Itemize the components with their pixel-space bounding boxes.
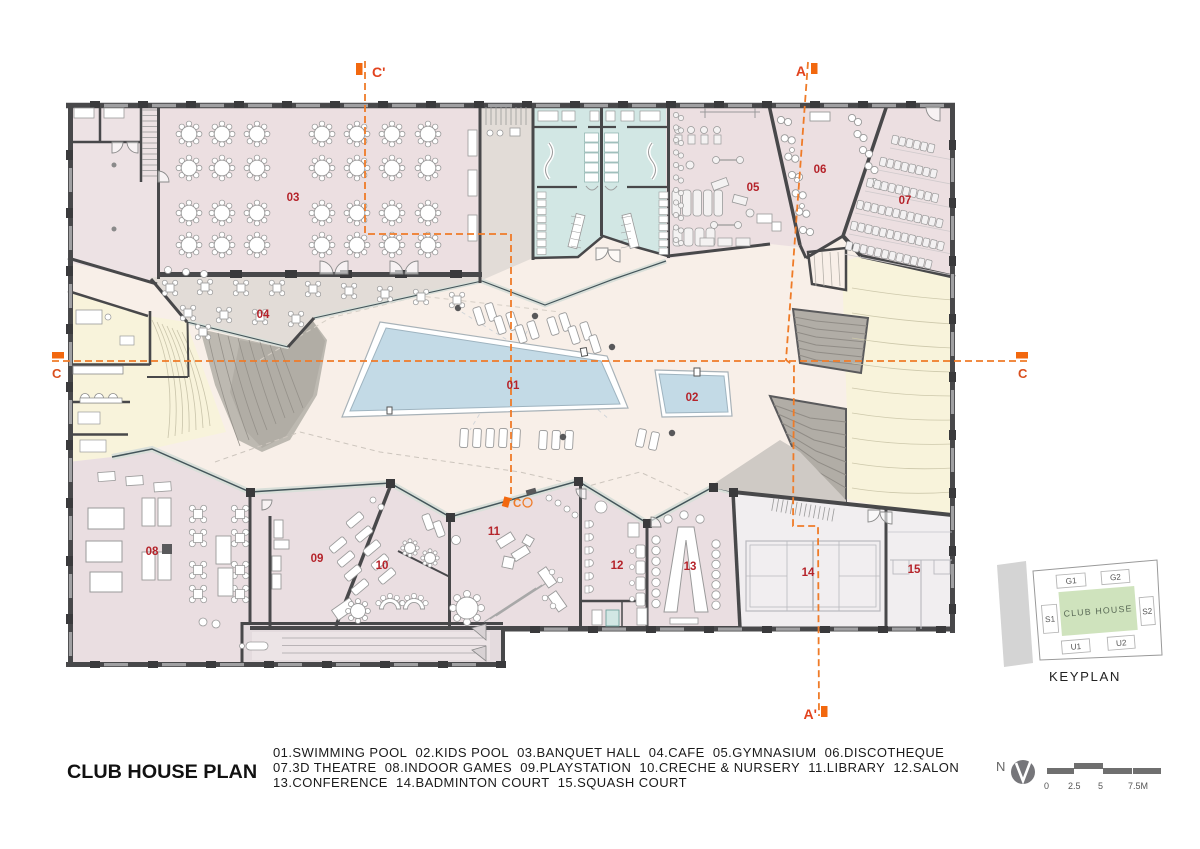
svg-text:5: 5 xyxy=(1098,781,1103,791)
svg-text:N: N xyxy=(996,759,1005,774)
svg-text:03: 03 xyxy=(287,192,300,204)
svg-text:08: 08 xyxy=(146,546,159,558)
svg-text:A': A' xyxy=(804,706,817,722)
svg-text:05: 05 xyxy=(747,182,760,194)
svg-text:13.CONFERENCE 14.BADMINTON CO: 13.CONFERENCE 14.BADMINTON COURT 15.SQUA… xyxy=(273,775,687,790)
svg-text:C: C xyxy=(52,366,62,381)
svg-text:7.5M: 7.5M xyxy=(1128,781,1148,791)
svg-text:15: 15 xyxy=(908,564,921,576)
svg-text:G2: G2 xyxy=(1110,573,1122,583)
svg-text:C: C xyxy=(513,498,521,510)
svg-text:11: 11 xyxy=(488,526,501,538)
svg-text:KEYPLAN: KEYPLAN xyxy=(1049,669,1121,684)
svg-text:14: 14 xyxy=(802,567,815,579)
svg-text:04: 04 xyxy=(257,309,270,321)
svg-text:2.5: 2.5 xyxy=(1068,781,1081,791)
svg-text:07.3D THEATRE 08.INDOOR GAMES: 07.3D THEATRE 08.INDOOR GAMES 09.PLAYSTA… xyxy=(273,760,959,775)
svg-text:S1: S1 xyxy=(1045,614,1056,624)
svg-text:C': C' xyxy=(372,64,385,80)
svg-text:A: A xyxy=(796,63,806,79)
svg-text:12: 12 xyxy=(611,560,624,572)
svg-text:01.SWIMMING POOL 02.KIDS POOL: 01.SWIMMING POOL 02.KIDS POOL 03.BANQUET… xyxy=(273,745,944,760)
svg-text:13: 13 xyxy=(684,561,697,573)
svg-text:09: 09 xyxy=(311,553,324,565)
svg-text:U1: U1 xyxy=(1070,642,1082,652)
svg-text:S2: S2 xyxy=(1142,607,1153,617)
svg-text:U2: U2 xyxy=(1116,638,1128,648)
svg-text:10: 10 xyxy=(376,560,389,572)
svg-text:C: C xyxy=(1018,366,1028,381)
svg-text:06: 06 xyxy=(814,164,827,176)
svg-text:01: 01 xyxy=(507,380,520,392)
svg-text:G1: G1 xyxy=(1065,576,1077,586)
svg-text:07: 07 xyxy=(899,195,912,207)
svg-text:0: 0 xyxy=(1044,781,1049,791)
svg-text:02: 02 xyxy=(686,392,699,404)
svg-text:CLUB HOUSE PLAN: CLUB HOUSE PLAN xyxy=(67,761,257,783)
